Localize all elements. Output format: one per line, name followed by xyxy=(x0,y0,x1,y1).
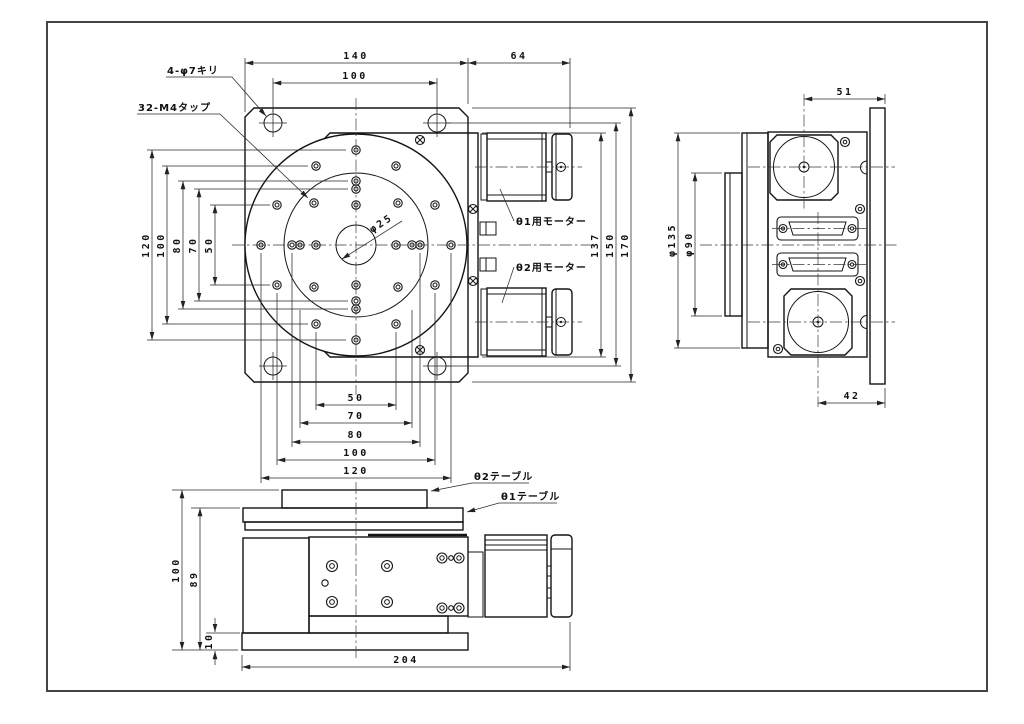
dim-plan-overall-width: 140 xyxy=(343,51,369,62)
front-view xyxy=(242,482,572,658)
side-view xyxy=(700,94,897,407)
dim-plan-motor-length: 64 xyxy=(510,51,527,62)
technical-drawing: 140 100 64 137 150 170 120 100 80 70 50 … xyxy=(0,0,1024,724)
dim-side-42: 42 xyxy=(843,391,860,402)
front-panel-screws xyxy=(322,553,464,613)
callout-tap-holes: 32-M4タップ xyxy=(138,101,211,114)
connector-stubs xyxy=(480,222,496,271)
dim-plan-left-80: 80 xyxy=(172,236,183,253)
drawing-page: 140 100 64 137 150 170 120 100 80 70 50 … xyxy=(0,0,1024,724)
motor-front xyxy=(468,535,572,617)
dim-side-51: 51 xyxy=(836,87,853,98)
dim-front-204: 204 xyxy=(393,655,419,666)
dim-plan-bottom-70: 70 xyxy=(347,411,364,422)
dim-plan-left-70: 70 xyxy=(188,236,199,253)
front-left-block xyxy=(243,538,309,633)
callout-motor2: θ2用モーター xyxy=(516,262,587,274)
dim-side-dia90: φ90 xyxy=(684,231,695,257)
theta1-table-front xyxy=(243,508,463,522)
dim-front-89: 89 xyxy=(189,570,200,587)
dim-plan-left-120: 120 xyxy=(141,232,152,258)
dim-front-100: 100 xyxy=(171,557,182,583)
callout-theta1-table: θ1テーブル xyxy=(501,490,560,503)
dim-plan-left-50: 50 xyxy=(204,236,215,253)
base-plate-front xyxy=(242,633,468,650)
dim-plan-bottom-100: 100 xyxy=(343,448,369,459)
dim-plan-bottom-50: 50 xyxy=(347,393,364,404)
dim-plan-bottom-120: 120 xyxy=(343,466,369,477)
dim-plan-left-100: 100 xyxy=(156,232,167,258)
theta2-table-side xyxy=(725,173,742,316)
callout-drill-holes: 4-φ7キリ xyxy=(167,65,219,77)
dim-plan-overall-height: 170 xyxy=(620,232,631,258)
theta1-table-side xyxy=(742,133,768,348)
dim-plan-body-height: 137 xyxy=(590,232,601,258)
base-plate-side xyxy=(870,108,885,384)
dim-plan-bottom-80: 80 xyxy=(347,430,364,441)
callout-theta2-table: θ2テーブル xyxy=(474,470,533,483)
dim-front-10: 10 xyxy=(204,632,215,649)
dim-side-dia135: φ135 xyxy=(667,223,678,257)
callout-motor1: θ1用モーター xyxy=(516,216,587,228)
dim-plan-hole-vpitch: 150 xyxy=(605,232,616,258)
dim-plan-hole-pitch: 100 xyxy=(342,71,368,82)
theta2-table-front xyxy=(282,490,427,508)
